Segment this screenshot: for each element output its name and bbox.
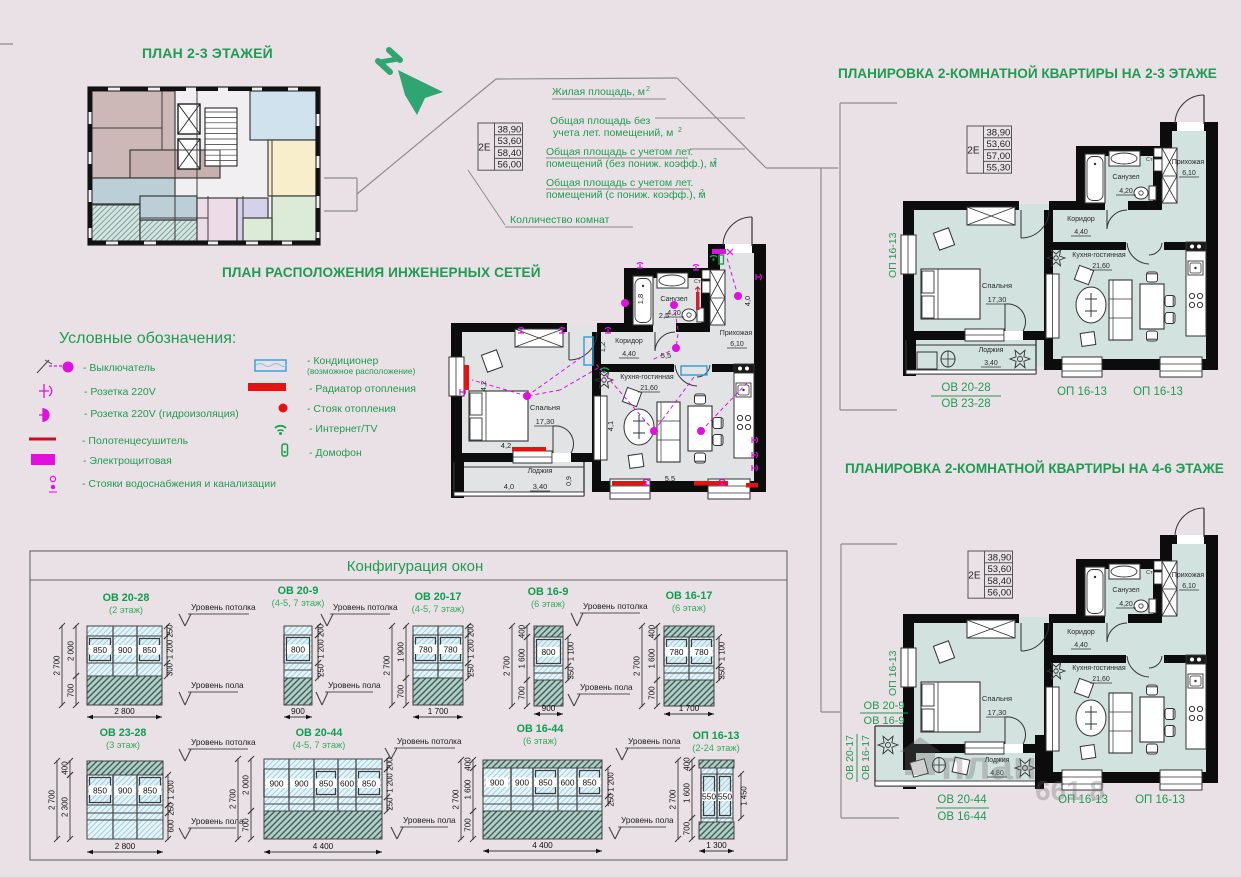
svg-text:Прихожая: Прихожая: [720, 330, 753, 337]
svg-text:- Выключатель: - Выключатель: [83, 362, 156, 374]
svg-text:Уровень потолка: Уровень потолка: [333, 602, 398, 612]
svg-text:700: 700: [683, 821, 692, 835]
svg-text:400: 400: [518, 624, 527, 638]
svg-text:700: 700: [242, 818, 251, 832]
svg-text:ОВ 20-28: ОВ 20-28: [941, 382, 990, 394]
svg-text:850: 850: [93, 786, 107, 796]
svg-text:4,1: 4,1: [606, 421, 615, 431]
svg-text:Конфигурация окон: Конфигурация окон: [347, 558, 484, 575]
svg-text:5,5: 5,5: [661, 351, 671, 360]
svg-text:58,40: 58,40: [988, 576, 1012, 587]
svg-text:(6 этаж): (6 этаж): [672, 603, 706, 613]
svg-text:ПЛАН 2-3 ЭТАЖЕЙ: ПЛАН 2-3 ЭТАЖЕЙ: [142, 44, 273, 61]
svg-text:38,90: 38,90: [498, 124, 522, 135]
svg-text:850: 850: [583, 778, 597, 788]
svg-text:ОВ 20-17: ОВ 20-17: [844, 735, 856, 780]
svg-text:21,60: 21,60: [640, 385, 658, 392]
svg-text:4,20: 4,20: [1119, 188, 1133, 195]
svg-text:700: 700: [397, 684, 406, 698]
svg-text:700: 700: [464, 818, 473, 832]
svg-text:2 300: 2 300: [61, 796, 70, 817]
svg-text:- Интернет/TV: - Интернет/TV: [309, 423, 378, 435]
svg-text:56,00: 56,00: [498, 160, 522, 171]
svg-text:Прихожая: Прихожая: [1172, 159, 1205, 166]
svg-text:ОВ 16-9: ОВ 16-9: [528, 586, 569, 598]
svg-text:(6 этаж): (6 этаж): [523, 736, 557, 746]
svg-text:ОВ 20-44: ОВ 20-44: [937, 794, 987, 806]
svg-text:6,10: 6,10: [730, 341, 744, 348]
svg-text:помещений (без пониж. коэфф.),: помещений (без пониж. коэфф.), м: [546, 158, 717, 170]
svg-text:Лоджия: Лоджия: [979, 347, 1004, 354]
svg-text:1 200: 1 200: [467, 639, 476, 659]
svg-text:2 700: 2 700: [669, 789, 678, 810]
svg-text:350: 350: [718, 666, 727, 680]
svg-text:- Розетка 220V (гидроизоляция): - Розетка 220V (гидроизоляция): [84, 408, 239, 420]
svg-text:38,90: 38,90: [987, 127, 1011, 138]
svg-text:Спальня: Спальня: [530, 403, 560, 412]
svg-text:Уровень потолка: Уровень потолка: [191, 737, 256, 747]
svg-text:1 600: 1 600: [683, 782, 692, 803]
svg-text:6,10: 6,10: [1182, 170, 1196, 177]
svg-text:900: 900: [291, 707, 305, 716]
svg-text:1 100: 1 100: [718, 641, 727, 661]
svg-text:4 400: 4 400: [313, 842, 334, 851]
svg-text:Уровень пола: Уровень пола: [328, 680, 381, 690]
svg-text:4,40: 4,40: [1074, 229, 1088, 236]
svg-text:ОВ 16-44: ОВ 16-44: [517, 723, 564, 735]
svg-text:4,40: 4,40: [622, 351, 636, 358]
svg-text:Кухня-гостинная: Кухня-гостинная: [1072, 665, 1126, 672]
svg-text:53,60: 53,60: [498, 136, 522, 147]
svg-text:- Розетка 220V: - Розетка 220V: [84, 386, 156, 398]
svg-text:ОВ 20-9: ОВ 20-9: [864, 700, 905, 712]
svg-text:2: 2: [646, 86, 650, 93]
svg-text:550: 550: [718, 792, 732, 802]
svg-text:2 800: 2 800: [115, 842, 136, 851]
svg-text:план: план: [941, 744, 1037, 788]
svg-text:38,90: 38,90: [988, 552, 1012, 563]
svg-text:ОВ 23-28: ОВ 23-28: [941, 398, 990, 410]
svg-text:850: 850: [143, 645, 157, 655]
svg-text:53,60: 53,60: [987, 139, 1011, 150]
svg-text:Коридор: Коридор: [615, 338, 643, 345]
svg-text:Кухня-гостинная: Кухня-гостинная: [620, 374, 674, 381]
svg-text:(возможное расположение): (возможное расположение): [307, 366, 416, 376]
svg-text:57,00: 57,00: [987, 151, 1011, 162]
svg-text:850: 850: [143, 786, 157, 796]
svg-text:780: 780: [444, 645, 458, 655]
svg-text:2Е: 2Е: [967, 146, 980, 157]
svg-text:350: 350: [567, 666, 576, 680]
svg-text:17,30: 17,30: [536, 417, 555, 426]
svg-text:250: 250: [386, 797, 395, 811]
svg-text:2 700: 2 700: [229, 788, 238, 809]
svg-text:2: 2: [678, 127, 682, 134]
svg-text:- Электрощитовая: - Электрощитовая: [83, 455, 172, 467]
svg-text:2Е: 2Е: [478, 143, 491, 154]
svg-text:550: 550: [702, 792, 716, 802]
svg-text:(2-24 этаж): (2-24 этаж): [692, 743, 739, 753]
svg-text:Общая площадь без: Общая площадь без: [550, 115, 651, 127]
svg-text:ОВ 20-28: ОВ 20-28: [103, 592, 150, 604]
svg-text:Общая площадь с учетом лет.: Общая площадь с учетом лет.: [546, 177, 693, 189]
svg-text:300: 300: [166, 662, 175, 676]
svg-text:Жилая площадь, м: Жилая площадь, м: [552, 86, 645, 98]
svg-text:Уровень потолка: Уровень потолка: [191, 602, 256, 612]
svg-text:4 400: 4 400: [532, 841, 553, 850]
svg-text:(3 этаж): (3 этаж): [106, 740, 140, 750]
svg-text:1,8: 1,8: [636, 294, 645, 304]
svg-text:Уровень пола: Уровень пола: [621, 815, 674, 825]
svg-text:ОП 16-13: ОП 16-13: [887, 650, 899, 696]
svg-text:400: 400: [61, 761, 70, 775]
svg-text:4,2: 4,2: [501, 441, 511, 450]
svg-text:900: 900: [542, 704, 556, 713]
svg-text:ОВ 20-9: ОВ 20-9: [278, 585, 319, 597]
svg-text:900: 900: [118, 645, 132, 655]
svg-text:Уровень потолка: Уровень потолка: [583, 601, 648, 611]
svg-text:- Стояки водоснабжения и канал: - Стояки водоснабжения и канализации: [82, 478, 276, 490]
svg-text:900: 900: [490, 778, 504, 788]
svg-text:ОВ 23-28: ОВ 23-28: [100, 727, 147, 739]
svg-text:4,20: 4,20: [1119, 601, 1133, 608]
svg-text:1 600: 1 600: [464, 779, 473, 800]
svg-text:1 200: 1 200: [607, 772, 616, 792]
svg-text:2 700: 2 700: [452, 789, 461, 810]
svg-text:0,9: 0,9: [566, 476, 573, 486]
svg-text:Санузел: Санузел: [1112, 587, 1139, 594]
svg-text:2 700: 2 700: [48, 789, 57, 810]
svg-text:2 800: 2 800: [114, 707, 135, 716]
svg-text:17,30: 17,30: [988, 708, 1007, 717]
svg-text:1 600: 1 600: [648, 648, 657, 669]
svg-text:учета лет. помещений, м: учета лет. помещений, м: [553, 127, 673, 139]
svg-text:1 600: 1 600: [518, 648, 527, 669]
svg-text:2: 2: [713, 158, 717, 165]
svg-text:1 450: 1 450: [740, 786, 749, 806]
svg-text:Коридор: Коридор: [1067, 216, 1095, 223]
svg-text:800: 800: [542, 647, 556, 657]
svg-text:Санузел: Санузел: [1112, 174, 1139, 181]
svg-text:600: 600: [561, 778, 575, 788]
svg-text:780: 780: [695, 647, 709, 657]
svg-text:(4-5, 7 этаж): (4-5, 7 этаж): [272, 598, 325, 608]
svg-text:850: 850: [539, 778, 553, 788]
svg-text:4,0: 4,0: [504, 482, 514, 491]
svg-text:900: 900: [515, 778, 529, 788]
svg-text:3,40: 3,40: [533, 482, 548, 491]
svg-text:400: 400: [648, 624, 657, 638]
svg-text:ОП 16-13: ОП 16-13: [1135, 794, 1185, 806]
svg-text:ОП 16-13: ОП 16-13: [1057, 386, 1107, 398]
svg-text:1 700: 1 700: [428, 707, 449, 716]
svg-text:ОП 16-13: ОП 16-13: [1058, 794, 1108, 806]
svg-text:4,20: 4,20: [667, 310, 681, 317]
svg-text:(4-5, 7 этаж): (4-5, 7 этаж): [412, 604, 465, 614]
svg-text:56,00: 56,00: [988, 588, 1012, 599]
svg-text:900: 900: [118, 786, 132, 796]
svg-text:ОП 16-13: ОП 16-13: [887, 232, 899, 278]
svg-text:1 200: 1 200: [317, 639, 326, 659]
svg-text:Уровень пола: Уровень пола: [628, 736, 681, 746]
svg-text:250: 250: [607, 793, 616, 807]
svg-text:1 900: 1 900: [397, 641, 406, 662]
svg-text:21,60: 21,60: [1092, 676, 1110, 683]
svg-text:6,10: 6,10: [1182, 583, 1196, 590]
svg-text:2 700: 2 700: [633, 655, 642, 676]
svg-text:400: 400: [683, 757, 692, 771]
svg-text:ОВ 16-17: ОВ 16-17: [666, 590, 713, 602]
svg-text:700: 700: [67, 683, 76, 697]
svg-text:Условные обозначения:: Условные обозначения:: [59, 330, 236, 347]
svg-text:Спальня: Спальня: [982, 694, 1012, 703]
svg-text:2: 2: [700, 189, 704, 196]
svg-text:ОВ 16-9: ОВ 16-9: [864, 715, 905, 727]
svg-text:- Стояк отопления: - Стояк отопления: [307, 403, 396, 415]
svg-text:(6 этаж): (6 этаж): [531, 599, 565, 609]
svg-text:780: 780: [670, 647, 684, 657]
svg-text:4,40: 4,40: [1074, 642, 1088, 649]
svg-text:1 200: 1 200: [166, 639, 175, 659]
svg-text:Уровень пола: Уровень пола: [191, 680, 244, 690]
svg-text:400: 400: [464, 757, 473, 771]
svg-text:ПЛАН РАСПОЛОЖЕНИЯ ИНЖЕНЕРНЫХ С: ПЛАН РАСПОЛОЖЕНИЯ ИНЖЕНЕРНЫХ СЕТЕЙ: [222, 265, 541, 280]
svg-text:900: 900: [295, 779, 309, 789]
svg-text:1,2: 1,2: [598, 342, 607, 352]
svg-text:17,30: 17,30: [988, 295, 1007, 304]
svg-text:800: 800: [291, 645, 305, 655]
svg-text:2 000: 2 000: [242, 774, 251, 795]
svg-text:850: 850: [362, 779, 376, 789]
svg-text:1 100: 1 100: [567, 641, 576, 661]
svg-text:2 000: 2 000: [67, 640, 76, 661]
svg-text:ОВ 16-17: ОВ 16-17: [860, 735, 872, 780]
svg-text:250: 250: [317, 663, 326, 677]
svg-text:5,5: 5,5: [665, 474, 675, 483]
svg-text:1 700: 1 700: [679, 704, 700, 713]
svg-text:ОВ 20-17: ОВ 20-17: [415, 591, 462, 603]
svg-text:- Радиатор отопления: - Радиатор отопления: [309, 383, 416, 395]
svg-text:850: 850: [93, 645, 107, 655]
svg-text:700: 700: [518, 686, 527, 700]
svg-text:(2 этаж): (2 этаж): [109, 605, 143, 615]
svg-text:Уровень пола: Уровень пола: [403, 815, 456, 825]
svg-text:600: 600: [340, 779, 354, 789]
svg-text:2Е: 2Е: [968, 571, 981, 582]
svg-text:Уровень пола: Уровень пола: [191, 816, 244, 826]
svg-text:2,5: 2,5: [659, 311, 669, 320]
svg-text:ОВ 16-44: ОВ 16-44: [937, 811, 987, 823]
svg-text:850: 850: [319, 779, 333, 789]
svg-text:21,60: 21,60: [1092, 263, 1110, 270]
svg-text:Колличество комнат: Колличество комнат: [510, 214, 610, 226]
svg-text:Уровень пола: Уровень пола: [580, 682, 633, 692]
svg-text:ОВ 20-44: ОВ 20-44: [296, 727, 343, 739]
svg-text:Спальня: Спальня: [982, 281, 1012, 290]
svg-text:- Полотенцесушитель: - Полотенцесушитель: [82, 435, 189, 447]
svg-text:1 300: 1 300: [706, 841, 727, 850]
svg-text:600: 600: [167, 819, 176, 833]
svg-text:ПЛАНИРОВКА 2-КОМНАТНОЙ КВАРТИР: ПЛАНИРОВКА 2-КОМНАТНОЙ КВАРТИРЫ НА 4-6 Э…: [845, 461, 1224, 476]
svg-text:4,0: 4,0: [743, 296, 752, 306]
svg-text:Кухня-гостинная: Кухня-гостинная: [1072, 252, 1126, 259]
svg-text:ПЛАНИРОВКА 2-КОМНАТНОЙ КВАРТИР: ПЛАНИРОВКА 2-КОМНАТНОЙ КВАРТИРЫ НА 2-3 Э…: [838, 66, 1217, 81]
svg-text:53,60: 53,60: [988, 564, 1012, 575]
svg-text:2 700: 2 700: [503, 655, 512, 676]
svg-text:4,2: 4,2: [479, 381, 488, 391]
svg-text:780: 780: [419, 645, 433, 655]
svg-text:помещений (с пониж. коэфф.), м: помещений (с пониж. коэфф.), м: [546, 189, 706, 201]
svg-text:Общая площадь с учетом лет.: Общая площадь с учетом лет.: [546, 146, 693, 158]
svg-text:2 700: 2 700: [383, 655, 392, 676]
svg-text:700: 700: [648, 686, 657, 700]
svg-text:Лоджия: Лоджия: [528, 468, 553, 475]
svg-text:(4-5, 7 этаж): (4-5, 7 этаж): [293, 740, 346, 750]
svg-text:55,30: 55,30: [987, 163, 1011, 174]
svg-text:250: 250: [467, 663, 476, 677]
svg-text:Прихожая: Прихожая: [1172, 572, 1205, 579]
svg-text:2 700: 2 700: [53, 655, 62, 676]
svg-text:Уровень потолка: Уровень потолка: [397, 736, 462, 746]
svg-text:1 200: 1 200: [386, 773, 395, 793]
svg-text:1 200: 1 200: [167, 780, 176, 800]
svg-text:Коридор: Коридор: [1067, 629, 1095, 636]
svg-text:- Домофон: - Домофон: [309, 447, 362, 459]
svg-text:ОП 16-13: ОП 16-13: [693, 730, 740, 742]
svg-text:58,40: 58,40: [498, 148, 522, 159]
svg-text:ОП 16-13: ОП 16-13: [1133, 386, 1183, 398]
svg-text:900: 900: [270, 779, 284, 789]
svg-text:3,40: 3,40: [984, 360, 998, 367]
